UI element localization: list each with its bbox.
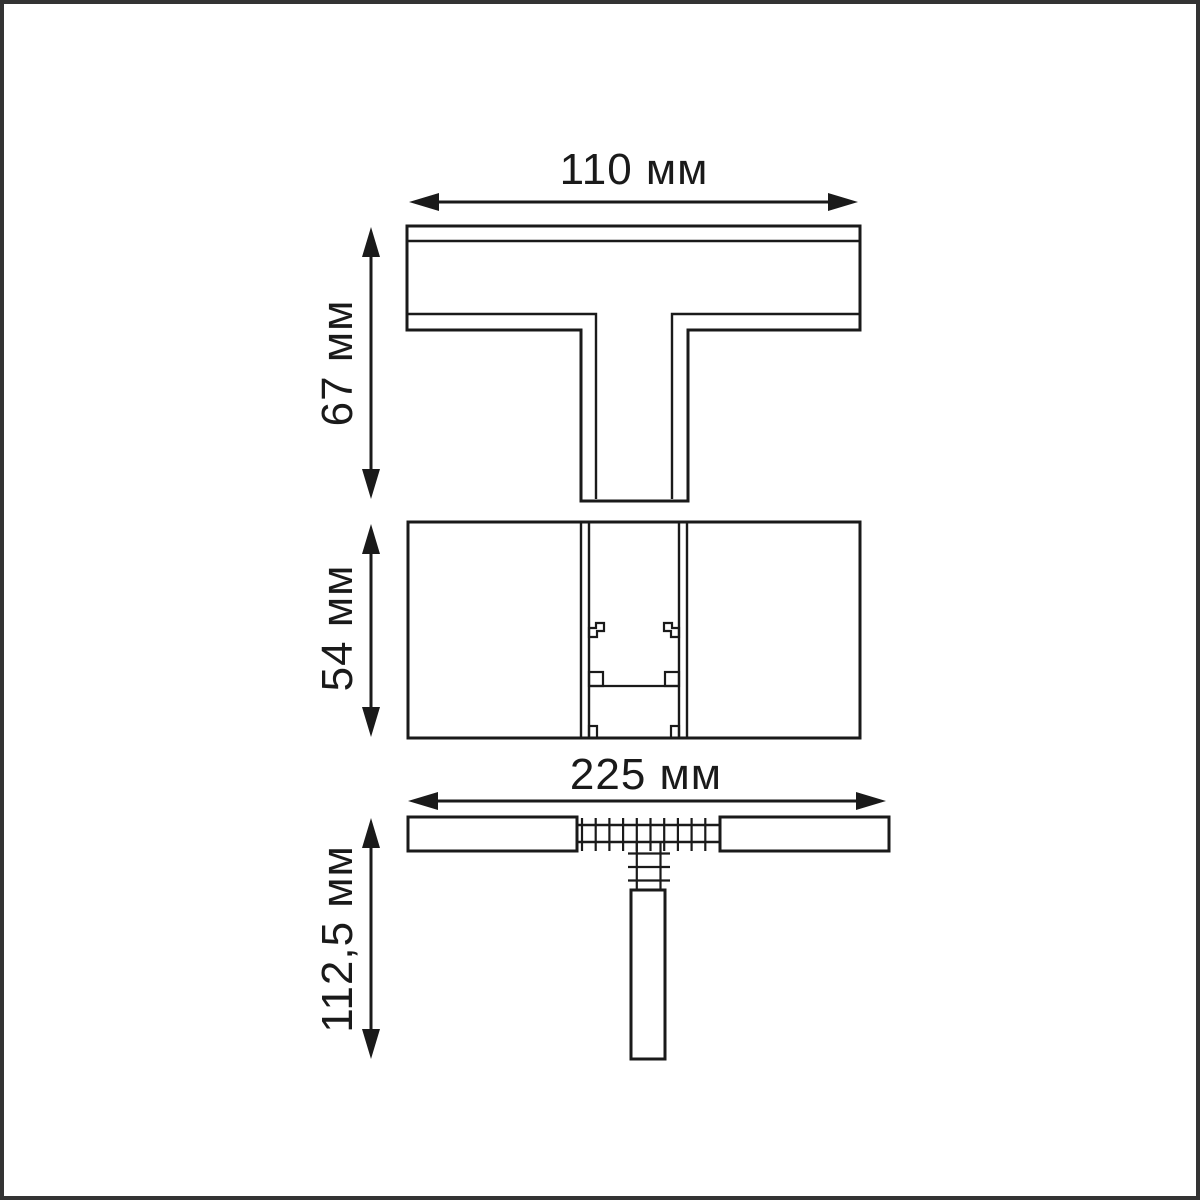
dimension-label-112-5: 112,5 мм [313, 845, 362, 1033]
arrowhead-right-225 [856, 792, 886, 810]
drawing-canvas: 110 мм 67 мм 5 [0, 0, 1200, 1200]
front-view-left-bar [408, 817, 577, 851]
dimension-side-height: 54 мм [313, 524, 380, 737]
front-view-right-bar [720, 817, 889, 851]
dimension-label-54: 54 мм [313, 565, 362, 692]
side-view [408, 522, 860, 738]
arrowhead-down-67 [362, 469, 380, 499]
dimension-top-width: 110 мм [409, 145, 858, 211]
side-view-right-lug [665, 672, 679, 686]
front-view [408, 817, 889, 1059]
side-view-left-contact-hook [589, 623, 604, 637]
dimension-label-67: 67 мм [313, 300, 362, 427]
top-view-outer-profile [407, 226, 860, 501]
top-view-inner-left-contour [407, 314, 596, 499]
arrowhead-left-110 [409, 193, 439, 211]
front-view-joint-ribs [582, 818, 705, 851]
dimension-front-height: 112,5 мм [313, 818, 380, 1059]
arrowhead-left-225 [408, 792, 438, 810]
side-view-right-contact-hook [664, 623, 679, 637]
arrowhead-up-67 [362, 227, 380, 257]
top-view-inner-right-contour [672, 314, 860, 499]
front-view-drop-rod [631, 890, 665, 1059]
technical-drawing-svg: 110 мм 67 мм 5 [0, 0, 1200, 1200]
dimension-label-110: 110 мм [560, 145, 709, 194]
dimension-label-225: 225 мм [570, 750, 722, 799]
arrowhead-down-54 [362, 707, 380, 737]
side-view-body [408, 522, 860, 738]
dimension-top-height: 67 мм [313, 227, 380, 499]
arrowhead-up-54 [362, 524, 380, 554]
dimension-front-width: 225 мм [408, 750, 886, 810]
side-view-left-lug [589, 672, 603, 686]
top-view [407, 226, 860, 501]
arrowhead-up-112-5 [362, 818, 380, 848]
arrowhead-right-110 [828, 193, 858, 211]
arrowhead-down-112-5 [362, 1029, 380, 1059]
